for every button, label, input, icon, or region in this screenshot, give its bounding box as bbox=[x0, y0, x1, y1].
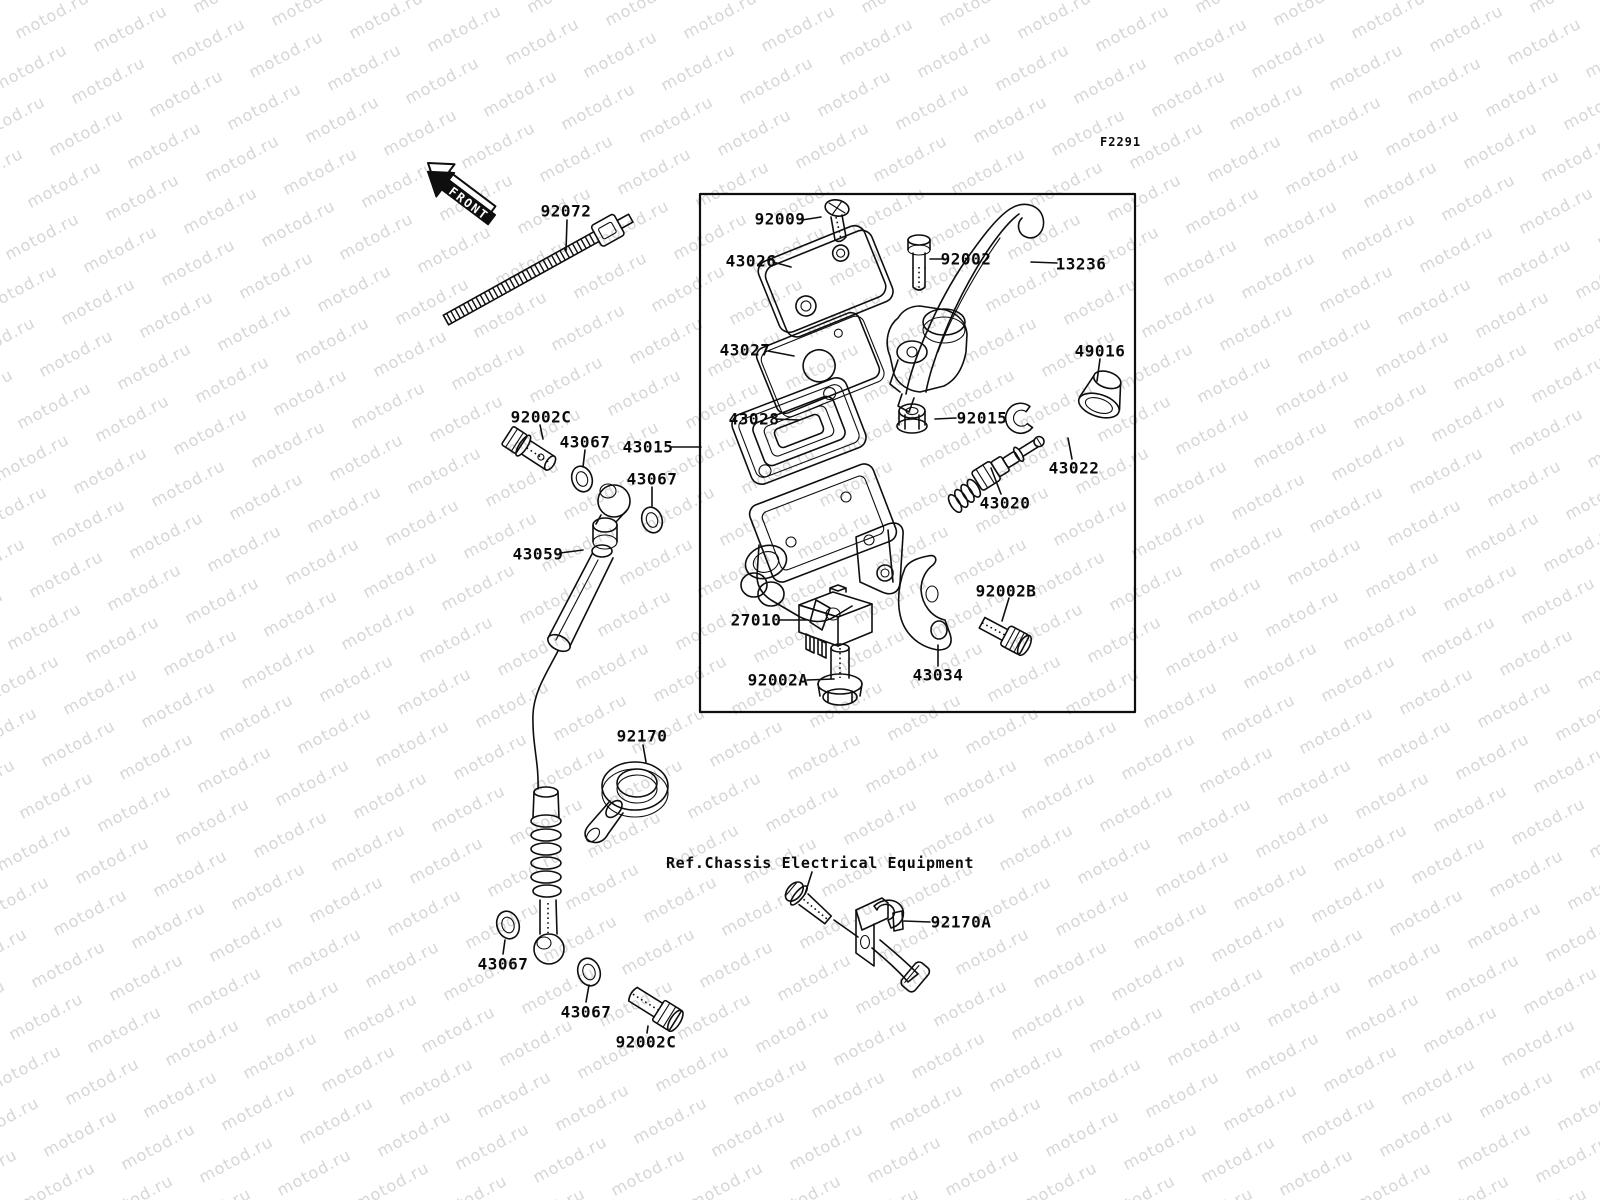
part-label-92170-20: 92170 bbox=[617, 727, 668, 746]
part-label-43067-12: 43067 bbox=[560, 433, 611, 452]
part-label-43027-5: 43027 bbox=[720, 341, 771, 360]
part-label-43034-18: 43034 bbox=[913, 666, 964, 685]
part-label-92002c-11: 92002C bbox=[511, 408, 572, 427]
part-label-43067-22: 43067 bbox=[478, 955, 529, 974]
part-label-92072-0: 92072 bbox=[541, 202, 592, 221]
part-label-92002c-24: 92002C bbox=[616, 1033, 677, 1052]
part-label-43028-7: 43028 bbox=[729, 410, 780, 429]
part-label-27010-16: 27010 bbox=[731, 611, 782, 630]
figure-code: F2291 bbox=[1100, 135, 1141, 149]
part-label-13236-4: 13236 bbox=[1056, 255, 1107, 274]
part-label-43020-10: 43020 bbox=[980, 494, 1031, 513]
part-label-49016-6: 49016 bbox=[1075, 342, 1126, 361]
part-label-43067-14: 43067 bbox=[627, 470, 678, 489]
parts-diagram-page: motod.rumotod.rumotod.rumotod.rumotod.ru… bbox=[0, 0, 1600, 1200]
part-label-92170a-21: 92170A bbox=[931, 913, 992, 932]
ref-note: Ref.Chassis Electrical Equipment bbox=[666, 854, 974, 872]
part-label-43059-15: 43059 bbox=[513, 545, 564, 564]
part-label-92002b-19: 92002B bbox=[976, 582, 1037, 601]
part-label-92002a-17: 92002A bbox=[748, 671, 809, 690]
part-label-92009-1: 92009 bbox=[755, 210, 806, 229]
part-label-43067-23: 43067 bbox=[561, 1003, 612, 1022]
part-label-92015-8: 92015 bbox=[957, 409, 1008, 428]
part-label-43022-9: 43022 bbox=[1049, 459, 1100, 478]
part-label-92002-3: 92002 bbox=[941, 250, 992, 269]
part-label-43026-2: 43026 bbox=[726, 252, 777, 271]
part-label-43015-13: 43015 bbox=[623, 438, 674, 457]
part-labels-layer: 9207292009430269200213236430274901643028… bbox=[0, 0, 1600, 1200]
